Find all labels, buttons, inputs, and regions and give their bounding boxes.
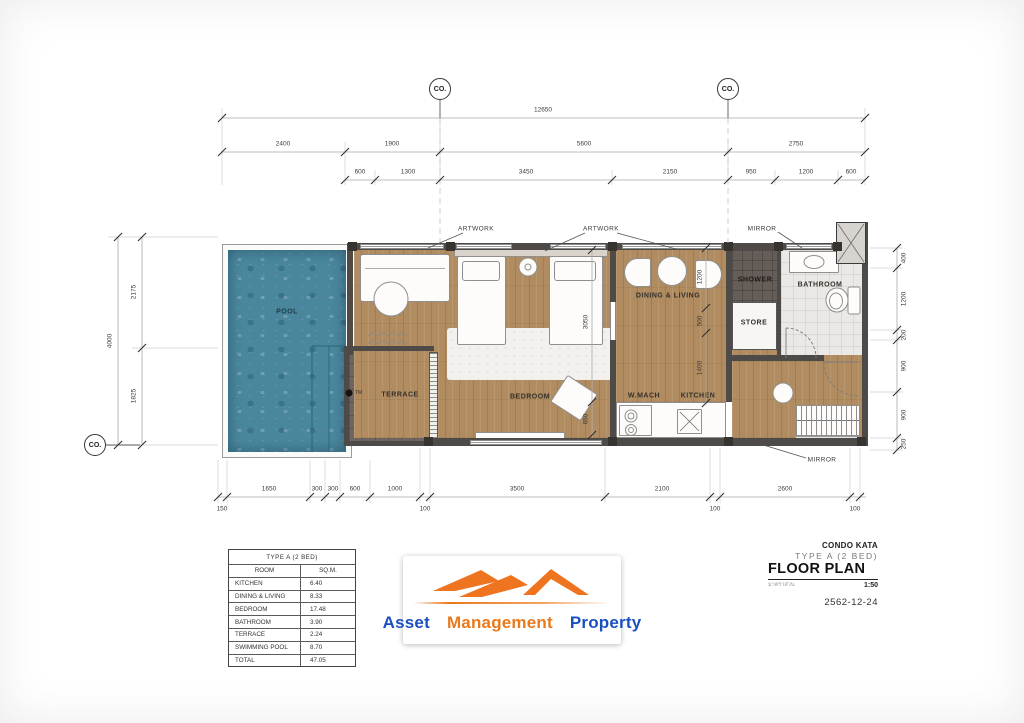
round-furniture xyxy=(374,256,860,436)
grid-bubble-bottom-left: CO. xyxy=(84,434,106,456)
logo-word-asset: Asset xyxy=(383,613,430,633)
extension-lines xyxy=(108,108,903,503)
living-rug-zigzag xyxy=(368,332,408,344)
grid-bubble-label: CO. xyxy=(434,86,446,93)
grid-bubble-top-left: CO. xyxy=(429,78,451,100)
grid-lines xyxy=(440,118,728,243)
pool-fitting-dot xyxy=(346,390,353,397)
sink-and-shaft-cross xyxy=(680,224,864,431)
door-swings xyxy=(786,328,858,396)
pool-steps xyxy=(312,346,346,452)
logo-word-property: Property xyxy=(570,613,642,633)
logo-word-management: Management xyxy=(447,613,553,633)
grid-bubble-label: CO. xyxy=(89,442,101,449)
grid-bubble-label: CO. xyxy=(722,86,734,93)
company-logo: Asset Management Property xyxy=(403,556,621,644)
dimension-lines xyxy=(118,118,897,497)
dimension-ticks xyxy=(114,114,901,501)
logo-underline xyxy=(413,602,611,604)
grid-bubble-top-right: CO. xyxy=(717,78,739,100)
leader-lines xyxy=(428,232,806,458)
logo-wordmark: Asset Management Property xyxy=(403,613,621,633)
floor-plan-sheet: CO. CO. CO. 12650 2400 1900 5600 2750 60… xyxy=(0,0,1024,723)
logo-mountains-icon xyxy=(429,562,597,600)
